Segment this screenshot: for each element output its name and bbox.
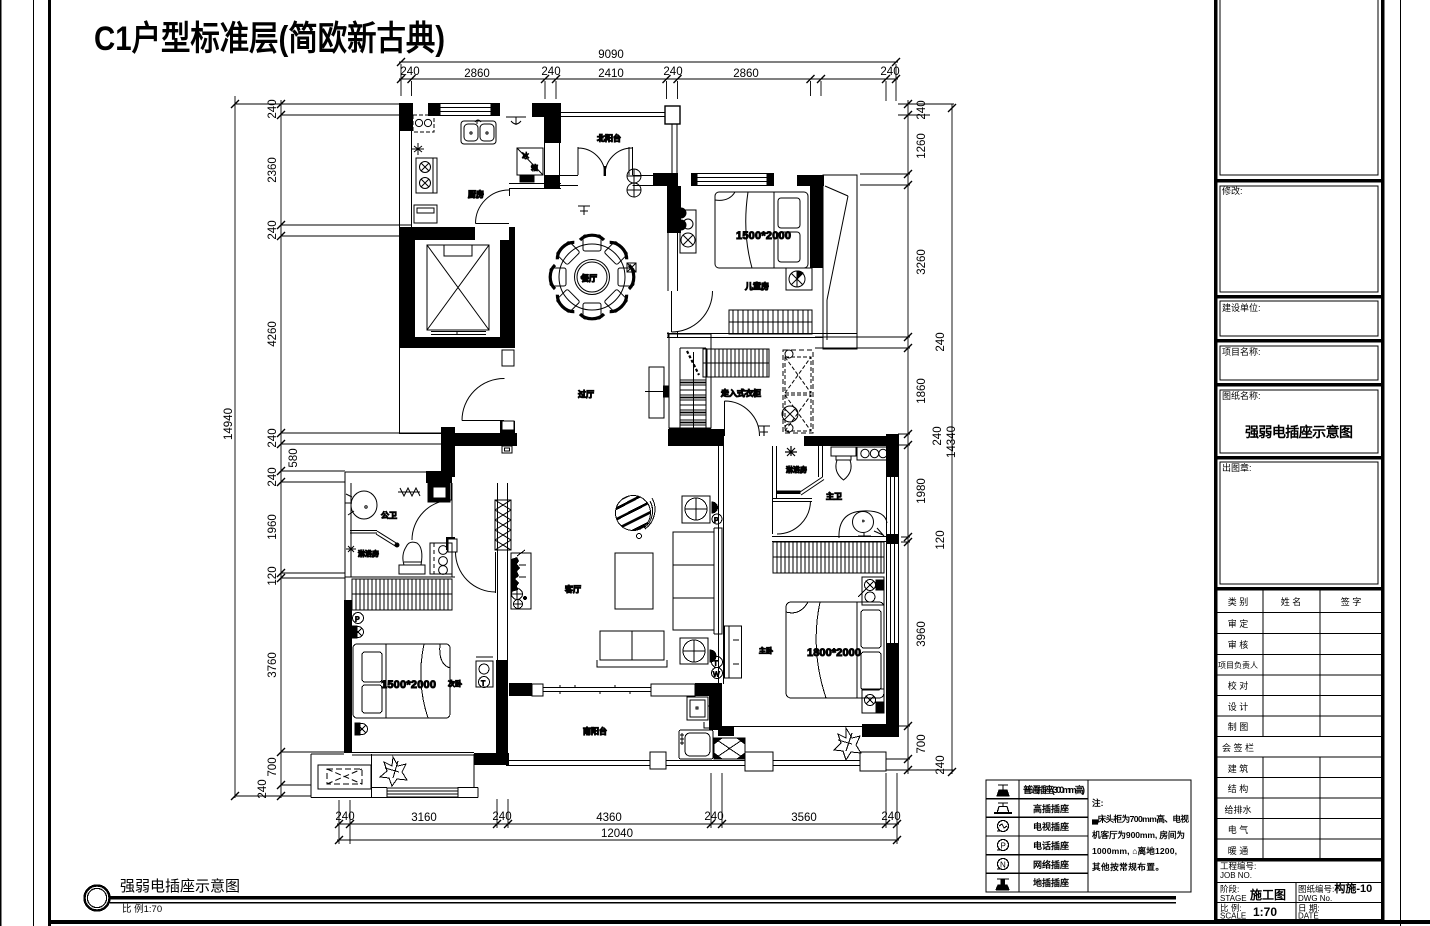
svg-text:类 别: 类 别 <box>1228 596 1249 607</box>
svg-text:T: T <box>481 681 486 688</box>
svg-text:1260: 1260 <box>916 133 928 159</box>
svg-text:JOB NO.: JOB NO. <box>1220 871 1252 880</box>
svg-text:1000mm, ⌂离地1200,: 1000mm, ⌂离地1200, <box>1092 845 1177 856</box>
svg-text:240: 240 <box>935 332 947 351</box>
svg-text:240: 240 <box>704 811 723 823</box>
svg-text:700: 700 <box>267 757 279 776</box>
svg-text:4260: 4260 <box>267 321 279 347</box>
svg-text:240: 240 <box>935 755 947 774</box>
svg-text:12040: 12040 <box>601 828 633 840</box>
svg-text:1500*2000: 1500*2000 <box>381 679 436 691</box>
svg-text:240: 240 <box>541 66 560 78</box>
svg-text:14340: 14340 <box>946 426 958 458</box>
svg-text:电视插座: 电视插座 <box>1033 821 1069 832</box>
svg-text:冰: 冰 <box>522 151 529 160</box>
svg-text:14940: 14940 <box>223 408 235 440</box>
svg-text:C1户型标准层(简欧新古典): C1户型标准层(简欧新古典) <box>94 19 445 58</box>
svg-text:240: 240 <box>267 428 279 447</box>
svg-text:P: P <box>1001 842 1006 851</box>
svg-text:电话插座: 电话插座 <box>1033 840 1069 851</box>
svg-text:建设单位:: 建设单位: <box>1222 302 1261 313</box>
svg-text:2410: 2410 <box>598 68 624 80</box>
svg-text:客厅: 客厅 <box>564 584 581 594</box>
svg-text:3160: 3160 <box>411 812 437 824</box>
svg-text:1860: 1860 <box>916 378 928 404</box>
svg-text:主卧: 主卧 <box>759 646 773 655</box>
svg-text:项目负责人: 项目负责人 <box>1218 660 1258 670</box>
svg-text:高插插座: 高插插座 <box>1033 803 1069 814</box>
svg-text:240: 240 <box>663 66 682 78</box>
svg-text:建 筑: 建 筑 <box>1228 763 1249 774</box>
svg-text:STAGE: STAGE <box>1220 894 1247 903</box>
svg-text:走入式衣柜: 走入式衣柜 <box>720 388 761 398</box>
svg-text:北阳台: 北阳台 <box>597 133 621 143</box>
svg-text:DATE: DATE <box>1298 912 1319 921</box>
svg-text:公卫: 公卫 <box>381 511 397 520</box>
svg-text:图纸名称:: 图纸名称: <box>1222 390 1261 401</box>
svg-text:制 图: 制 图 <box>1228 721 1249 732</box>
svg-text:校 对: 校 对 <box>1228 680 1249 691</box>
svg-text:240: 240 <box>881 811 900 823</box>
svg-text:1800*2000: 1800*2000 <box>807 647 861 659</box>
svg-text:2360: 2360 <box>267 157 279 183</box>
svg-text:240: 240 <box>880 66 899 78</box>
svg-text:2860: 2860 <box>464 68 490 80</box>
svg-text:签 字: 签 字 <box>1341 596 1362 607</box>
svg-text:设 计: 设 计 <box>1228 701 1249 712</box>
svg-text:DWG No.: DWG No. <box>1298 894 1332 903</box>
svg-text:1960: 1960 <box>267 514 279 540</box>
svg-text:儿童房: 儿童房 <box>744 281 769 291</box>
svg-text:南阳台: 南阳台 <box>583 726 607 736</box>
svg-text:580: 580 <box>288 448 300 467</box>
svg-text:审 定: 审 定 <box>1228 618 1249 629</box>
svg-text:3260: 3260 <box>916 249 928 275</box>
svg-text:注:: 注: <box>1092 797 1104 808</box>
svg-text:240: 240 <box>267 99 279 118</box>
svg-text:4360: 4360 <box>596 812 622 824</box>
svg-text:餐厅: 餐厅 <box>580 273 597 283</box>
svg-text:P: P <box>714 518 719 525</box>
svg-text:3760: 3760 <box>267 652 279 678</box>
svg-text:过厅: 过厅 <box>578 389 594 399</box>
svg-text:地插插座: 地插插座 <box>1033 877 1069 888</box>
svg-text:240: 240 <box>932 426 944 445</box>
svg-text:3960: 3960 <box>916 621 928 647</box>
svg-text:审 核: 审 核 <box>1228 639 1249 650</box>
svg-text:网络插座: 网络插座 <box>1033 859 1069 870</box>
svg-text:T: T <box>714 661 719 668</box>
svg-text:阶段:: 阶段: <box>1220 884 1239 894</box>
svg-text:会 签 栏: 会 签 栏 <box>1222 742 1254 753</box>
svg-text:700: 700 <box>916 734 928 753</box>
svg-text:出图章:: 出图章: <box>1222 462 1252 473</box>
svg-text:1980: 1980 <box>916 478 928 504</box>
svg-text:施工图: 施工图 <box>1250 887 1286 902</box>
svg-text:P: P <box>355 617 360 624</box>
svg-text:姓 名: 姓 名 <box>1281 596 1302 607</box>
svg-text:修改:: 修改: <box>1222 185 1243 196</box>
svg-text:淋浴房: 淋浴房 <box>358 549 379 558</box>
svg-text:9090: 9090 <box>598 49 624 61</box>
svg-text:强弱电插座示意图: 强弱电插座示意图 <box>120 877 240 895</box>
svg-text:1:70: 1:70 <box>1253 905 1277 919</box>
svg-text:N: N <box>1000 861 1006 870</box>
svg-text:1500*2000: 1500*2000 <box>736 230 791 242</box>
svg-text:240: 240 <box>267 220 279 239</box>
svg-text:暖 通: 暖 通 <box>1228 845 1249 856</box>
svg-text:普通插座(300mm高): 普通插座(300mm高) <box>1023 784 1085 795</box>
svg-text:240: 240 <box>916 100 928 119</box>
svg-text:项目名称:: 项目名称: <box>1222 346 1261 357</box>
svg-text:W: W <box>713 672 720 679</box>
svg-text:240: 240 <box>335 811 354 823</box>
svg-text:给排水: 给排水 <box>1224 804 1251 815</box>
svg-text:2860: 2860 <box>733 68 759 80</box>
svg-text:240: 240 <box>400 66 419 78</box>
svg-text:▄床头柜为700mm高、电视: ▄床头柜为700mm高、电视 <box>1092 813 1189 825</box>
svg-text:机客厅为900mm, 房间为: 机客厅为900mm, 房间为 <box>1092 829 1185 840</box>
svg-text:图纸编号:构施-10: 图纸编号:构施-10 <box>1298 881 1372 895</box>
svg-text:120: 120 <box>935 530 947 549</box>
svg-text:强弱电插座示意图: 强弱电插座示意图 <box>1245 424 1353 440</box>
svg-text:结 构: 结 构 <box>1228 783 1249 794</box>
svg-text:120: 120 <box>267 566 279 585</box>
svg-text:其他按常规布置。: 其他按常规布置。 <box>1092 861 1164 872</box>
svg-text:次卧: 次卧 <box>448 679 462 688</box>
svg-text:工程编号:: 工程编号: <box>1220 861 1256 871</box>
svg-text:电 气: 电 气 <box>1228 824 1249 835</box>
svg-text:比 例1:70: 比 例1:70 <box>122 903 162 915</box>
svg-text:240: 240 <box>492 811 511 823</box>
svg-text:240: 240 <box>267 467 279 486</box>
svg-text:淋浴房: 淋浴房 <box>786 465 807 474</box>
svg-text:箱: 箱 <box>531 163 538 172</box>
svg-text:SCALE: SCALE <box>1220 912 1246 921</box>
svg-text:主卫: 主卫 <box>826 491 842 501</box>
svg-text:厨房: 厨房 <box>468 189 484 199</box>
svg-text:3560: 3560 <box>791 812 817 824</box>
